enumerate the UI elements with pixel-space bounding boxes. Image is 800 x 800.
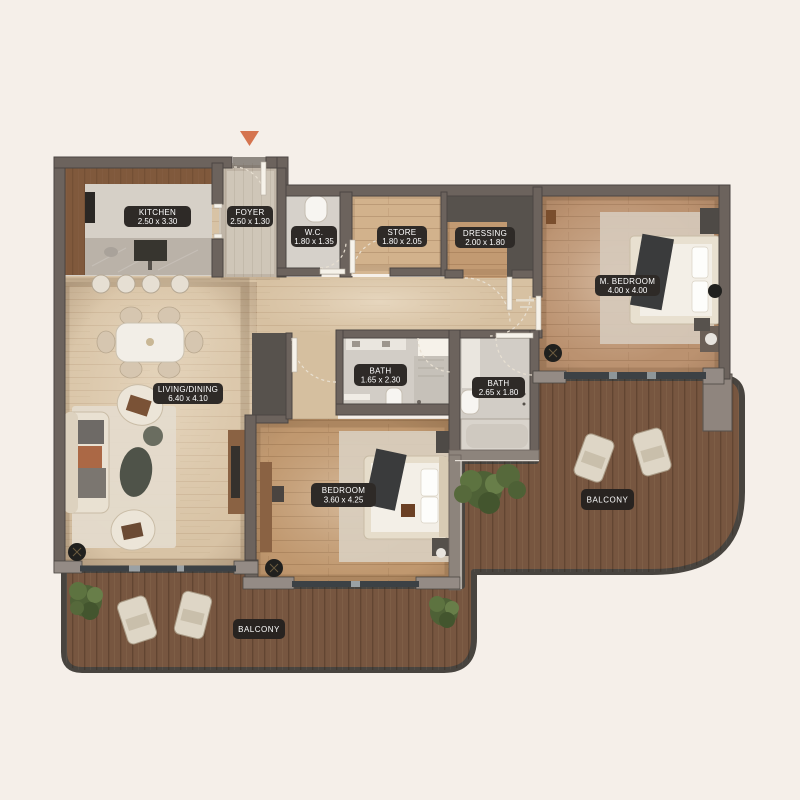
svg-text:M. BEDROOM: M. BEDROOM: [600, 277, 655, 286]
svg-text:LIVING/DINING: LIVING/DINING: [158, 385, 218, 394]
svg-text:STORE: STORE: [388, 228, 417, 237]
svg-text:W.C.: W.C.: [305, 228, 324, 237]
svg-text:KITCHEN: KITCHEN: [139, 208, 176, 217]
svg-text:2.65 x 1.80: 2.65 x 1.80: [479, 388, 519, 397]
svg-text:2.50 x 3.30: 2.50 x 3.30: [138, 217, 178, 226]
svg-text:4.00 x 4.00: 4.00 x 4.00: [608, 286, 648, 295]
svg-text:6.40 x 4.10: 6.40 x 4.10: [168, 394, 208, 403]
svg-text:BEDROOM: BEDROOM: [322, 486, 365, 495]
svg-text:BALCONY: BALCONY: [587, 496, 629, 505]
svg-text:BALCONY: BALCONY: [238, 625, 280, 634]
svg-text:1.65 x 2.30: 1.65 x 2.30: [361, 376, 401, 385]
svg-text:FOYER: FOYER: [235, 208, 264, 217]
svg-text:1.80 x 2.05: 1.80 x 2.05: [382, 237, 422, 246]
svg-text:1.80 x 1.35: 1.80 x 1.35: [294, 237, 334, 246]
svg-text:BATH: BATH: [488, 379, 510, 388]
svg-text:BATH: BATH: [370, 367, 392, 376]
svg-text:3.60 x 4.25: 3.60 x 4.25: [324, 496, 364, 505]
svg-text:2.00 x 1.80: 2.00 x 1.80: [465, 238, 505, 247]
svg-text:2.50 x 1.30: 2.50 x 1.30: [230, 217, 270, 226]
svg-text:DRESSING: DRESSING: [463, 229, 507, 238]
